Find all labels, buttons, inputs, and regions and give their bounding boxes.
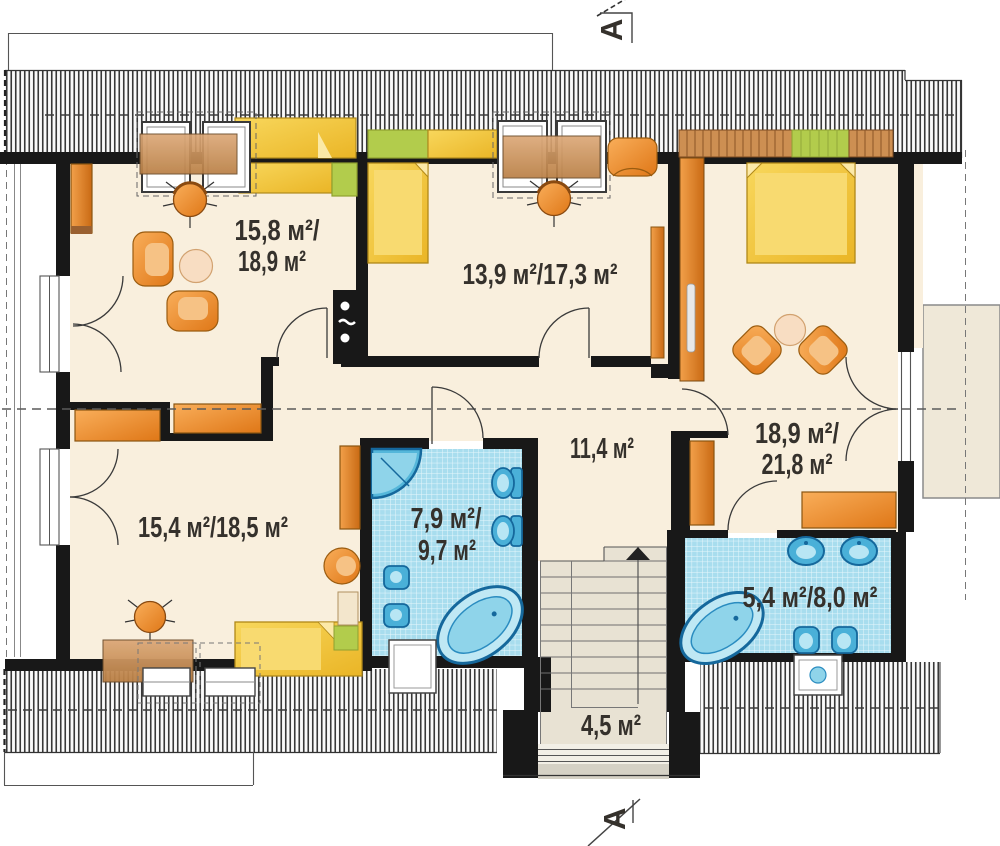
svg-text:13,9 м²/17,3 м²: 13,9 м²/17,3 м² xyxy=(463,259,618,291)
svg-text:4,5 м²: 4,5 м² xyxy=(581,710,641,742)
svg-text:7,9 м²/: 7,9 м²/ xyxy=(411,503,482,535)
svg-text:9,7 м²: 9,7 м² xyxy=(418,535,476,567)
svg-text:11,4 м²: 11,4 м² xyxy=(570,433,634,465)
svg-text:A: A xyxy=(594,19,629,41)
svg-text:21,8 м²: 21,8 м² xyxy=(762,449,833,481)
svg-text:15,4 м²/18,5 м²: 15,4 м²/18,5 м² xyxy=(138,512,288,544)
svg-text:15,8 м²/: 15,8 м²/ xyxy=(235,215,320,247)
svg-text:18,9 м²: 18,9 м² xyxy=(238,246,306,278)
svg-text:18,9 м²/: 18,9 м²/ xyxy=(755,418,839,450)
svg-text:5,4 м²/8,0 м²: 5,4 м²/8,0 м² xyxy=(743,582,878,614)
svg-text:A: A xyxy=(597,808,632,830)
